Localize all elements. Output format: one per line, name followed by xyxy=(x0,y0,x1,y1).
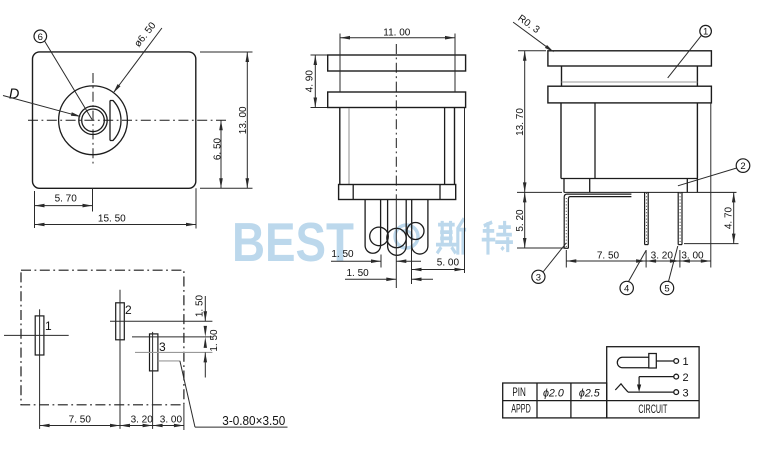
svg-text:3: 3 xyxy=(682,387,688,399)
svg-text:15. 50: 15. 50 xyxy=(98,214,126,225)
svg-text:PIN: PIN xyxy=(512,387,526,399)
svg-text:2: 2 xyxy=(682,372,688,384)
svg-text:4. 70: 4. 70 xyxy=(723,206,734,229)
svg-text:3. 20: 3. 20 xyxy=(651,251,674,262)
svg-text:3. 20: 3. 20 xyxy=(131,415,154,426)
svg-text:1: 1 xyxy=(703,27,708,38)
svg-text:4: 4 xyxy=(624,284,629,295)
svg-text:5: 5 xyxy=(664,284,669,295)
svg-text:7. 50: 7. 50 xyxy=(69,415,92,426)
svg-text:D: D xyxy=(9,87,19,103)
svg-text:11. 00: 11. 00 xyxy=(383,27,410,38)
svg-text:1. 50: 1. 50 xyxy=(346,268,369,279)
svg-text:13. 00: 13. 00 xyxy=(238,106,249,134)
svg-text:BEST: BEST xyxy=(232,211,354,273)
svg-text:7. 50: 7. 50 xyxy=(597,251,620,262)
svg-text:APPD: APPD xyxy=(511,403,531,415)
svg-text:5. 00: 5. 00 xyxy=(437,258,460,269)
svg-text:13. 70: 13. 70 xyxy=(515,108,526,136)
svg-text:1. 50: 1. 50 xyxy=(194,294,205,317)
svg-text:3: 3 xyxy=(159,340,166,354)
svg-text:6. 50: 6. 50 xyxy=(212,137,223,160)
svg-text:R0. 3: R0. 3 xyxy=(516,13,542,36)
svg-text:CIRCUIT: CIRCUIT xyxy=(638,402,667,416)
svg-text:5. 70: 5. 70 xyxy=(55,193,78,204)
svg-text:ϕ2.0: ϕ2.0 xyxy=(543,387,564,399)
svg-text:ϕ2.5: ϕ2.5 xyxy=(579,387,600,399)
svg-text:3: 3 xyxy=(536,272,541,283)
svg-text:1: 1 xyxy=(45,319,52,333)
svg-text:6: 6 xyxy=(38,32,43,43)
svg-text:1. 50: 1. 50 xyxy=(209,329,220,352)
svg-text:3-0.80×3.50: 3-0.80×3.50 xyxy=(222,414,285,428)
svg-text:3. 00: 3. 00 xyxy=(681,251,704,262)
svg-text:1. 50: 1. 50 xyxy=(331,249,354,260)
svg-text:ø6. 50: ø6. 50 xyxy=(132,20,158,49)
svg-text:2: 2 xyxy=(740,161,745,172)
svg-text:5. 20: 5. 20 xyxy=(515,209,526,232)
svg-text:4. 90: 4. 90 xyxy=(304,70,315,93)
svg-text:1: 1 xyxy=(682,356,688,368)
svg-text:3. 00: 3. 00 xyxy=(160,415,183,426)
svg-text:2: 2 xyxy=(125,303,132,317)
